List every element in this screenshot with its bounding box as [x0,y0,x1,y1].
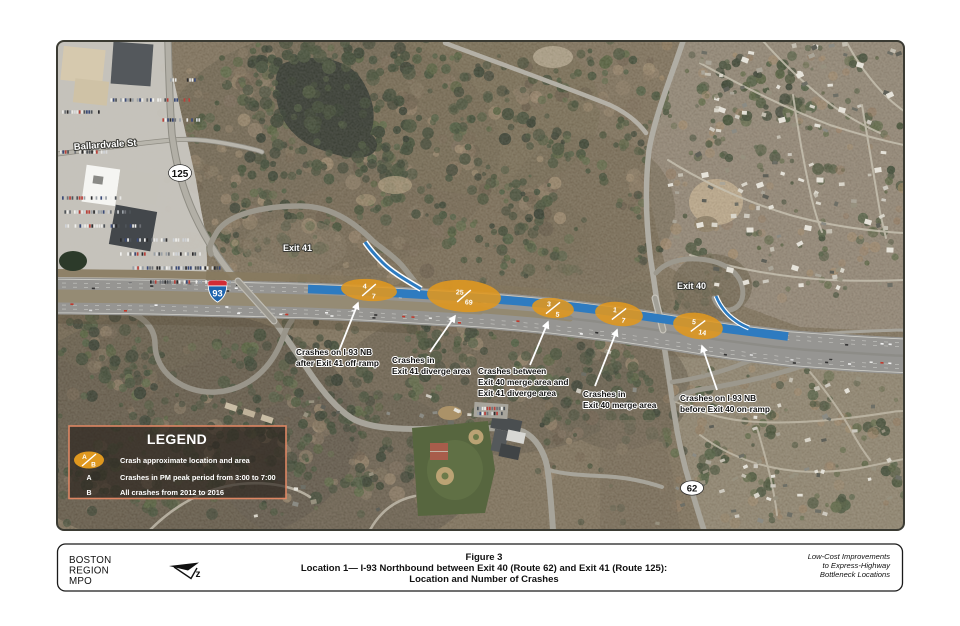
svg-text:Figure 3: Figure 3 [466,552,503,563]
svg-text:LEGEND: LEGEND [147,431,207,447]
svg-text:Crashes in: Crashes in [392,355,434,365]
svg-text:Crashes on I-93 NB: Crashes on I-93 NB [296,347,372,357]
svg-text:Exit 41 diverge area: Exit 41 diverge area [478,388,556,398]
svg-text:Exit 40: Exit 40 [677,281,706,291]
svg-text:z: z [196,569,201,580]
svg-text:Exit 40 merge area: Exit 40 merge area [583,400,657,410]
svg-text:before Exit 40 on-ramp: before Exit 40 on-ramp [680,404,770,414]
svg-text:Crashes between: Crashes between [478,366,546,376]
svg-text:Crashes on I-93 NB: Crashes on I-93 NB [680,393,756,403]
svg-text:MPO: MPO [69,576,92,587]
svg-text:69: 69 [465,299,473,307]
svg-text:A: A [86,475,91,482]
svg-text:A: A [82,454,87,461]
svg-text:Exit 41: Exit 41 [283,243,312,253]
svg-text:B: B [91,462,96,469]
svg-text:Crashes in: Crashes in [583,389,625,399]
svg-text:25: 25 [456,289,464,297]
svg-text:14: 14 [698,329,707,337]
svg-text:Bottleneck Locations: Bottleneck Locations [820,570,890,579]
svg-text:Location 1— I-93 Northbound be: Location 1— I-93 Northbound between Exit… [301,563,667,574]
svg-text:to Express-Highway: to Express-Highway [822,561,891,570]
svg-text:Location and Number of Crashes: Location and Number of Crashes [409,574,558,585]
svg-text:93: 93 [212,289,222,299]
svg-text:125: 125 [172,169,189,180]
svg-text:Low-Cost Improvements: Low-Cost Improvements [808,552,890,561]
svg-text:Crash approximate location and: Crash approximate location and area [120,456,251,465]
svg-text:Crashes in PM peak period from: Crashes in PM peak period from 3:00 to 7… [120,473,276,482]
svg-text:B: B [86,490,91,497]
svg-text:62: 62 [687,484,698,495]
svg-text:BOSTON: BOSTON [69,555,111,566]
svg-text:REGION: REGION [69,566,109,577]
svg-text:Exit 40 merge area and: Exit 40 merge area and [478,377,568,387]
svg-text:Exit 41 diverge area: Exit 41 diverge area [392,366,470,376]
svg-text:7: 7 [372,293,376,300]
svg-text:4: 4 [363,283,367,290]
svg-text:All crashes from 2012 to 2016: All crashes from 2012 to 2016 [120,488,224,497]
svg-text:after Exit 41 off-ramp: after Exit 41 off-ramp [296,358,379,368]
